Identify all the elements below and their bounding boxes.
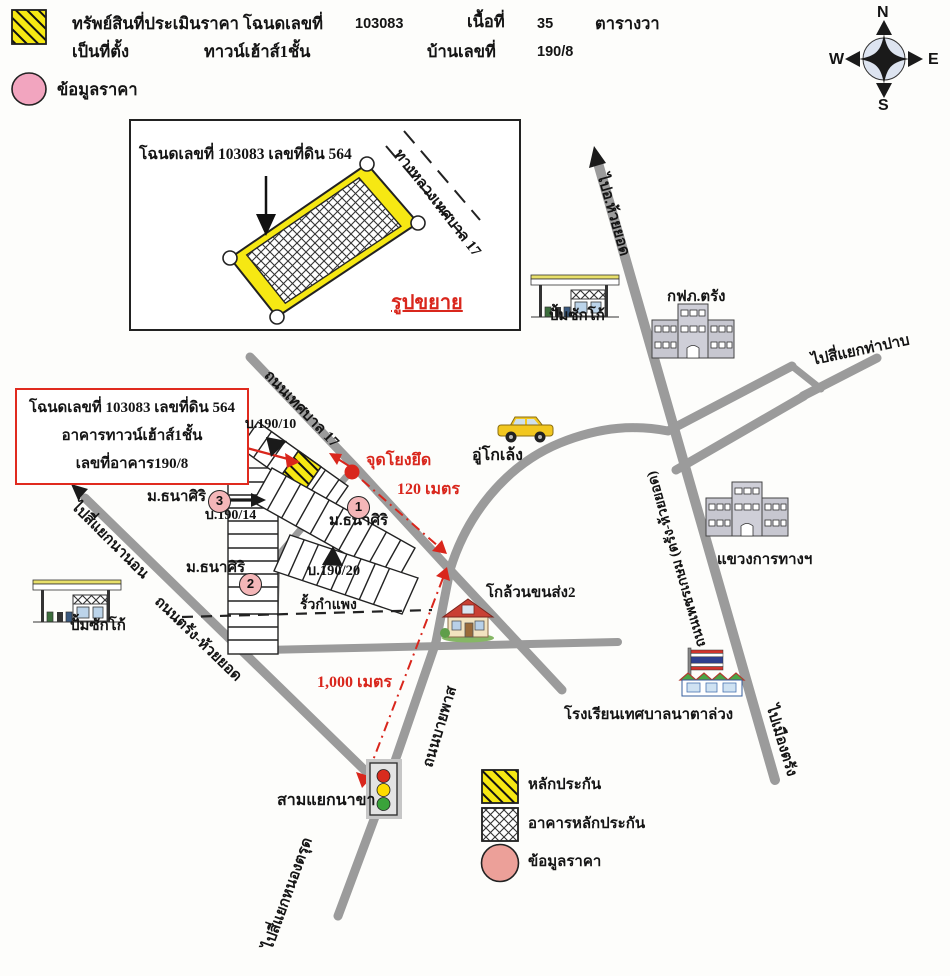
inset-caption: รูปขยาย — [391, 291, 463, 315]
place-label-school: โรงเรียนเทศบาลนาตาล่วง — [564, 706, 733, 724]
header-location-label: เป็นที่ตั้ง — [72, 42, 129, 62]
point-circle-1: 1 — [347, 496, 370, 519]
highway-office-building-icon — [706, 482, 788, 536]
legend-price-swatch — [482, 845, 519, 882]
callout-line1: โฉนดเลขที่ 103083 เลขที่ดิน 564 — [19, 395, 245, 423]
callout-line2: อาคารทาวน์เฮ้าส์1ชั้น — [19, 423, 245, 451]
tie-point-dot — [345, 465, 360, 480]
marker-label-village-2: ม.ธนาศิริ — [186, 559, 245, 577]
place-label-pea: กฟภ.ตรัง — [667, 288, 725, 306]
compass-north-label: N — [877, 3, 889, 22]
header-area-label: เนื้อที่ — [467, 12, 505, 32]
place-label-junction: สามแยกนาขา — [277, 791, 376, 810]
legend-swatches — [482, 770, 519, 882]
place-label-gas-top: ปั้มซักโก้ — [549, 307, 605, 325]
place-label-highway-office: แขวงการทางฯ — [717, 551, 812, 569]
callout-line3: เลขที่อาคาร190/8 — [19, 451, 245, 479]
marker-label-190-20: บ.190/20 — [307, 563, 360, 580]
header-building-type: ทาวน์เฮ้าส์1ชั้น — [204, 42, 310, 62]
tie-arrowhead-icon — [329, 453, 342, 465]
header-price-swatch — [12, 73, 46, 105]
place-label-garage: อู่โกเล้ง — [472, 446, 523, 465]
header-swatches — [12, 10, 46, 105]
header-house-no-label: บ้านเลขที่ — [427, 42, 496, 62]
appraisal-map-document: ทรัพย์สินที่ประเมินราคา โฉนดเลขที่ 10308… — [0, 0, 950, 976]
place-label-gas-left: ปั้มซักโก้ — [70, 617, 126, 635]
distance-label-120m: 120 เมตร — [397, 480, 460, 499]
compass-west-label: W — [829, 50, 844, 69]
header-area-value: 35 — [537, 16, 553, 33]
point-circle-2: 2 — [239, 573, 262, 596]
header-house-no: 190/8 — [537, 44, 573, 61]
compass-south-label: S — [878, 96, 889, 115]
legend-label-building: อาคารหลักประกัน — [528, 815, 645, 833]
marker-label-village-3: ม.ธนาศิริ — [147, 488, 206, 506]
compass-east-label: E — [928, 50, 939, 69]
road-northeast-curve — [450, 366, 792, 570]
legend-label-price: ข้อมูลราคา — [528, 853, 601, 871]
place-label-transport-depot: โกล้วนขนส่ง2 — [486, 584, 576, 602]
header-property-label: ทรัพย์สินที่ประเมินราคา โฉนดเลขที่ — [72, 14, 323, 34]
gas-station-left-icon — [33, 580, 121, 622]
marker-label-tie-point: จุดโยงยึด — [366, 451, 431, 470]
header-price-label: ข้อมูลราคา — [57, 80, 138, 100]
subject-callout-box: โฉนดเลขที่ 103083 เลขที่ดิน 564 อาคารทาว… — [15, 388, 249, 485]
compass-rose-icon — [845, 20, 923, 98]
pea-building-icon — [652, 304, 734, 358]
inset-parcel-label: โฉนดเลขที่ 103083 เลขที่ดิน 564 — [139, 146, 352, 165]
road-horizontal-soi — [264, 642, 618, 650]
car-icon — [498, 417, 553, 443]
header-deed-no: 103083 — [355, 16, 403, 33]
legend-label-collateral: หลักประกัน — [528, 776, 601, 794]
road-parallel-lower — [676, 396, 804, 470]
marker-label-190-10: บ.190/10 — [245, 417, 296, 434]
marker-label-fence: รั้วกำแพง — [300, 598, 357, 615]
point-circle-3: 3 — [208, 490, 231, 513]
header-area-unit: ตารางวา — [595, 14, 660, 34]
distance-label-1000m: 1,000 เมตร — [317, 673, 392, 692]
